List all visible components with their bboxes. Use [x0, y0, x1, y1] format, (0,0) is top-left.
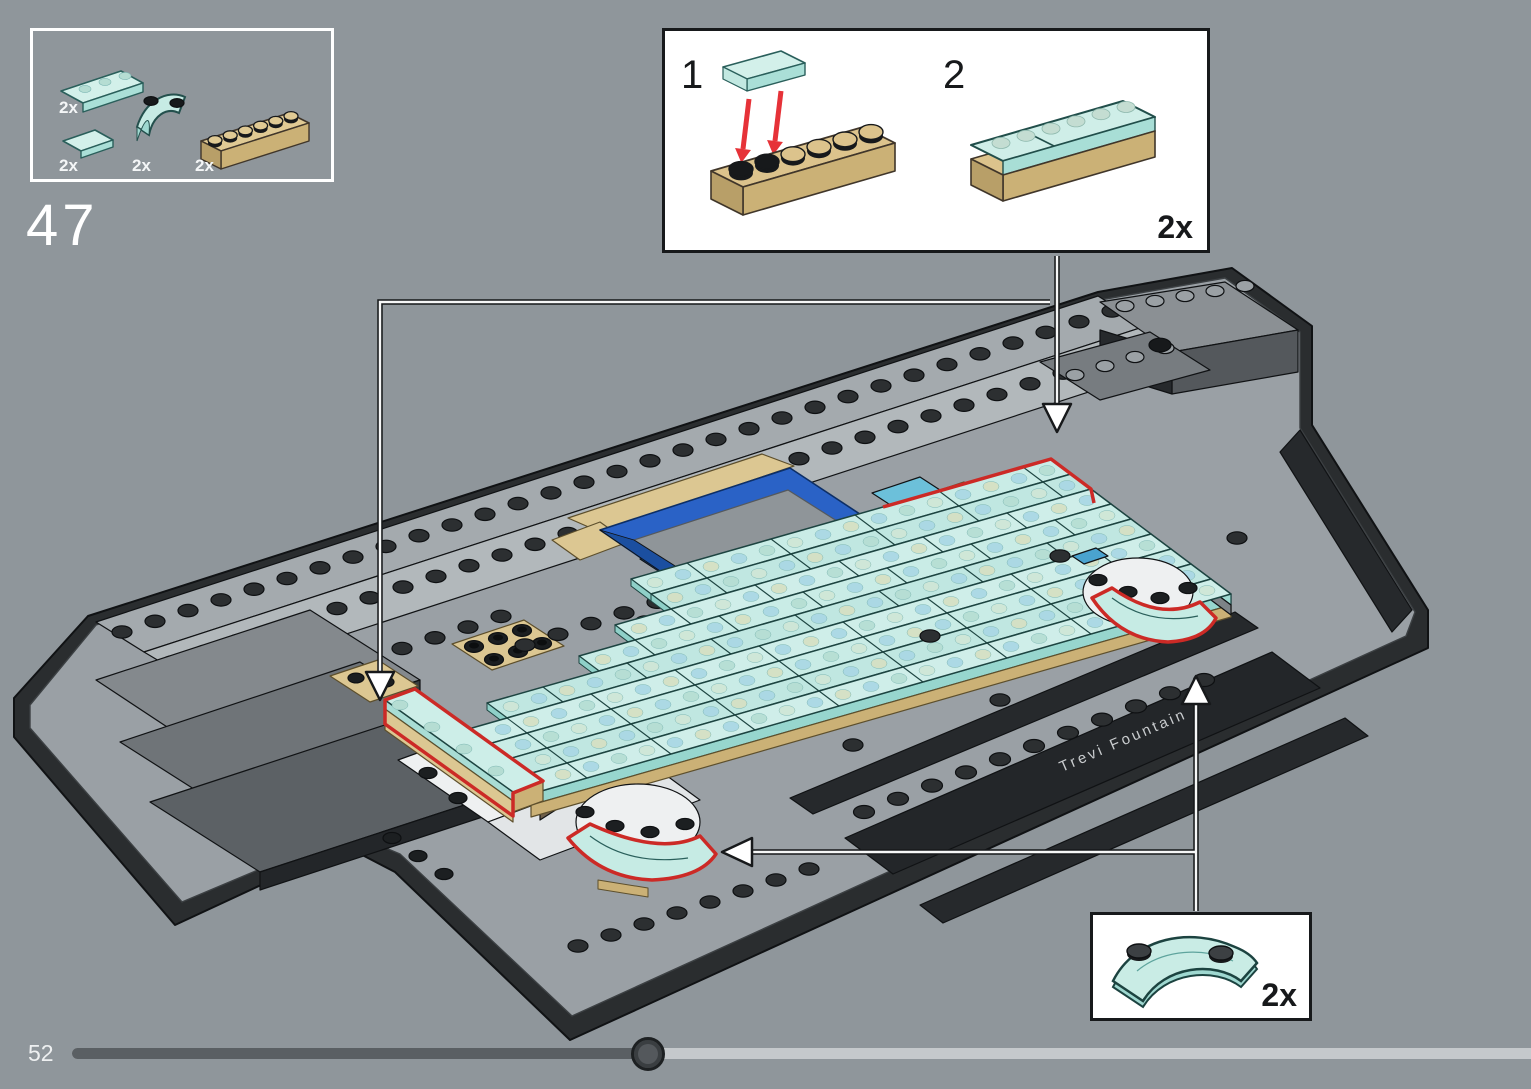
part-qty-label: 2x: [195, 156, 214, 176]
page-number: 52: [28, 1040, 54, 1067]
substep-inset: 1 2 2x: [662, 28, 1210, 253]
part-qty-label: 2x: [59, 156, 78, 176]
substep-1-label: 1: [681, 53, 703, 98]
substep-2-label: 2: [943, 53, 965, 98]
parts-panel: 2x 2x 2x 2x: [30, 28, 334, 182]
progress-fill: [72, 1048, 656, 1059]
part-qty-label: 2x: [132, 156, 151, 176]
progress-handle-icon[interactable]: [631, 1037, 665, 1071]
part-callout: 2x: [1090, 912, 1312, 1021]
substep-drawings: [665, 31, 1201, 244]
instruction-page: Trevi Fountain 2x 2x 2x 2x 47 1 2 2x 2x …: [0, 0, 1531, 1089]
substep-qty-label: 2x: [1157, 209, 1193, 246]
step-number: 47: [26, 192, 99, 259]
callout-qty-label: 2x: [1261, 977, 1297, 1014]
progress-track[interactable]: [72, 1048, 1531, 1059]
part-qty-label: 2x: [59, 98, 78, 118]
